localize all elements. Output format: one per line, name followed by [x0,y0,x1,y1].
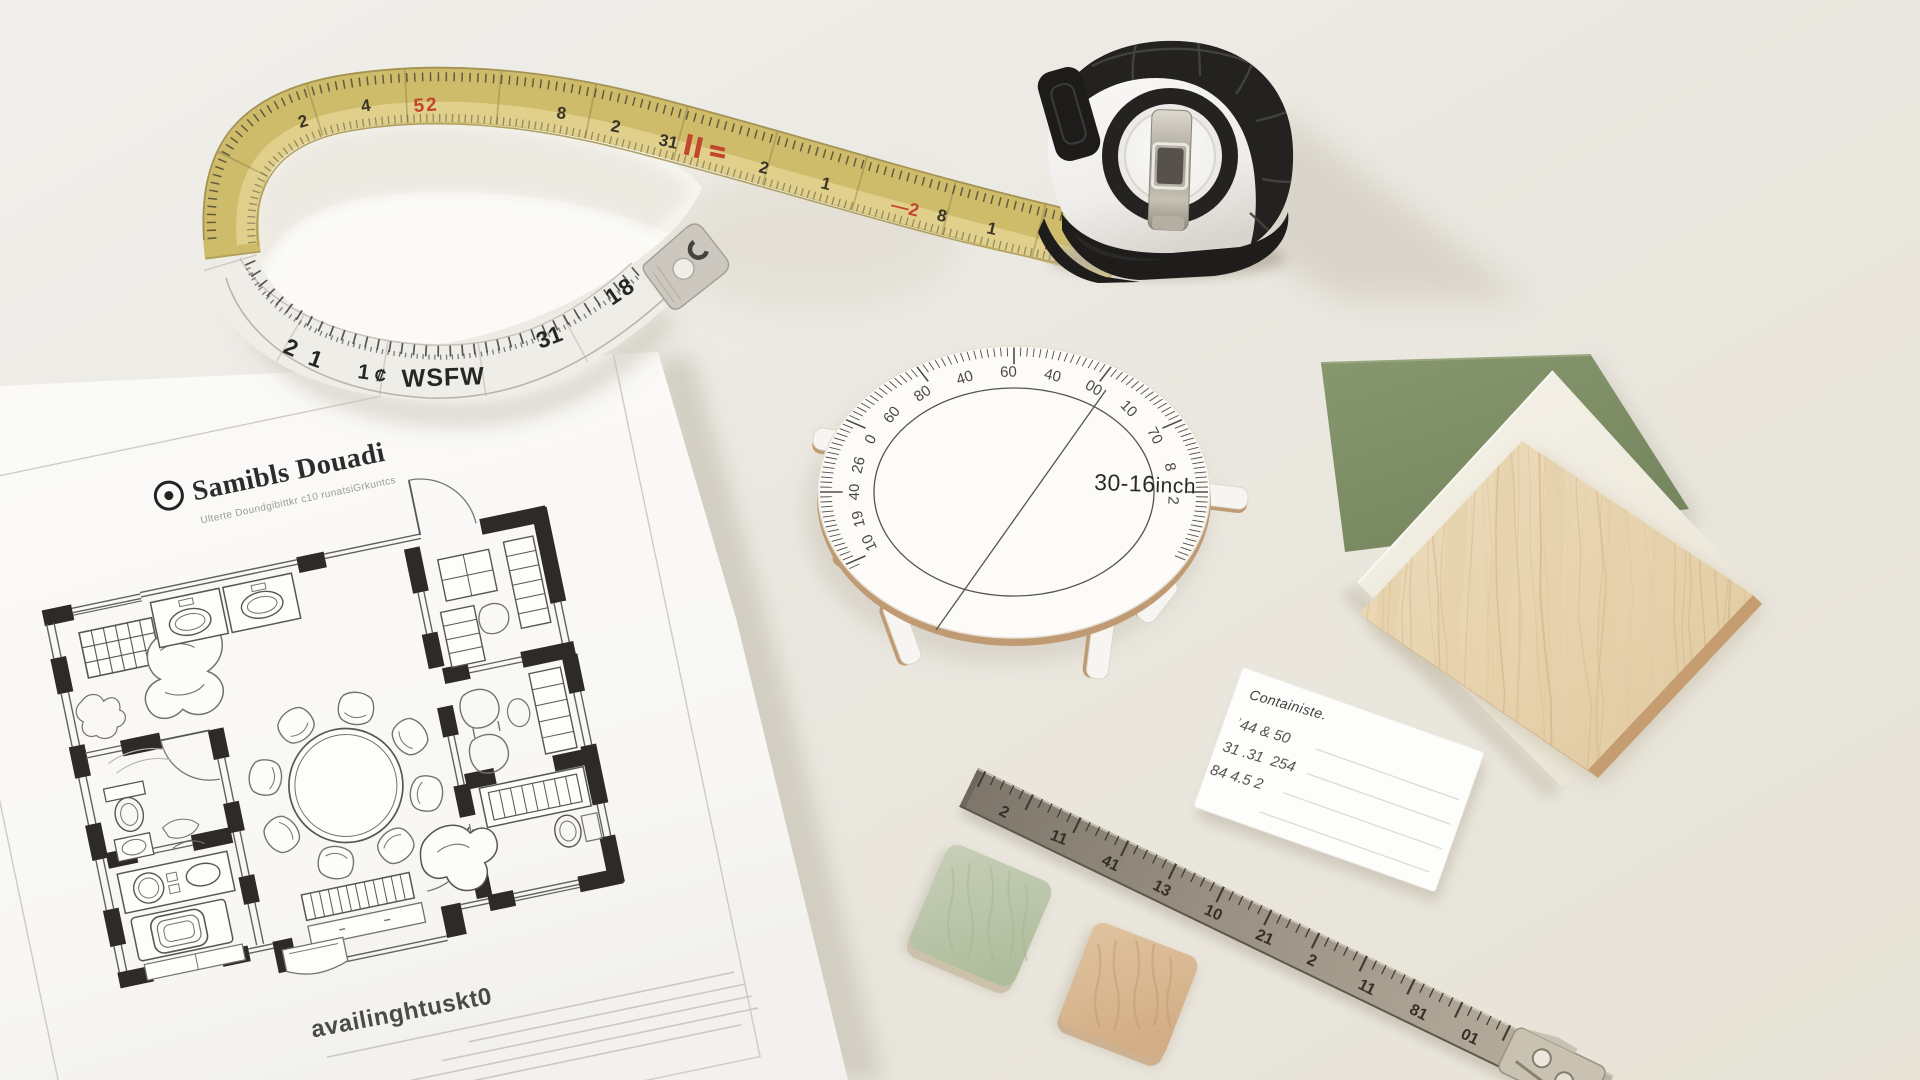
svg-text:40: 40 [846,484,863,501]
svg-text:60: 60 [1000,363,1017,381]
svg-text:31: 31 [657,130,679,153]
svg-text:WSFW: WSFW [401,362,485,393]
svg-text:52: 52 [413,94,440,117]
